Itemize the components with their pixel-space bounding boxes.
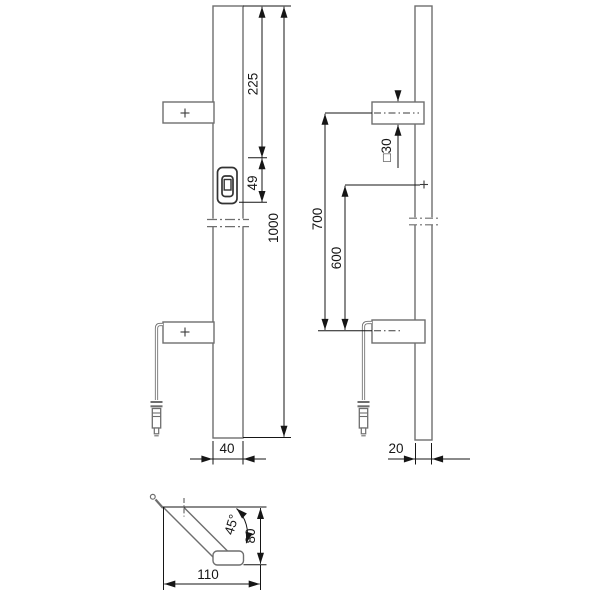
front-view: 225 49 1000 40 (151, 6, 292, 465)
dim-label-40: 40 (219, 441, 234, 456)
dim-label-20: 20 (388, 441, 403, 456)
sensor-cable-front (151, 325, 164, 436)
bottom-mounting-bracket-side (372, 320, 425, 343)
technical-drawing-page: 225 49 1000 40 (0, 0, 600, 600)
side-view: □30 700 600 20 (310, 6, 470, 465)
dim-label-110: 110 (197, 567, 219, 582)
break-lines-front (207, 219, 249, 227)
lock-cylinder (218, 168, 238, 204)
dim-label-700: 700 (310, 208, 325, 231)
bar-cross-section (213, 551, 244, 565)
cable-pin-plan (150, 494, 163, 508)
dim-label-45deg: 45° (221, 513, 241, 537)
side-view-dimensions (318, 91, 470, 465)
dim-label-80: 80 (243, 528, 258, 543)
dim-label-sq30: □30 (379, 138, 394, 161)
dim-label-600: 600 (329, 247, 344, 270)
dim-label-1000: 1000 (266, 213, 281, 243)
dim-label-225: 225 (246, 73, 261, 96)
break-lines-side (409, 217, 439, 225)
cable-connector-front (151, 402, 163, 436)
dim-label-49: 49 (245, 175, 260, 190)
cable-connector-side (358, 402, 370, 436)
plan-detail-view: 45° 80 110 (150, 494, 266, 590)
drawing-svg: 225 49 1000 40 (0, 0, 600, 600)
bracket-arm-edge-1 (164, 508, 218, 562)
sensor-cable-side (358, 323, 373, 436)
